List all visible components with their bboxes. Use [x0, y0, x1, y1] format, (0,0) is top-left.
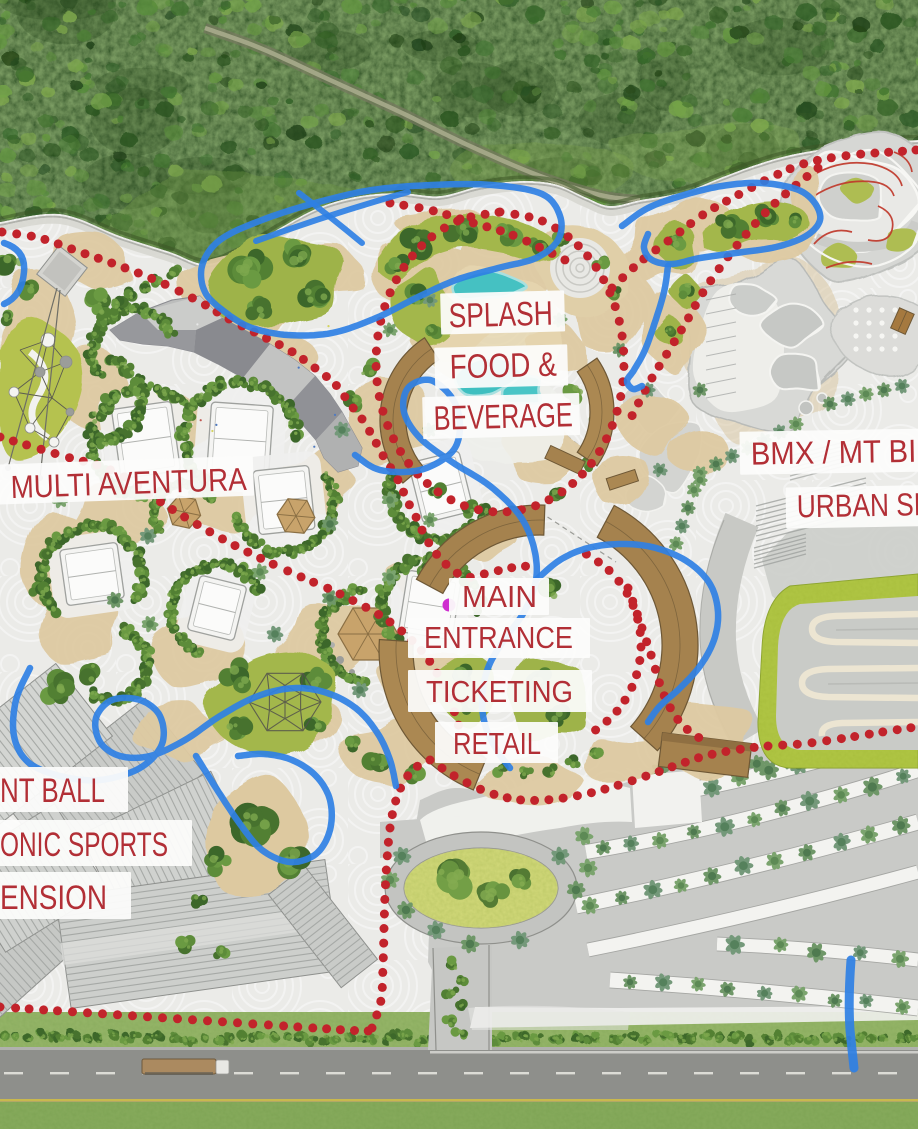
- svg-text:SPLASH: SPLASH: [448, 295, 553, 336]
- svg-text:URBAN SPO: URBAN SPO: [797, 486, 918, 525]
- svg-text:BEVERAGE: BEVERAGE: [433, 396, 573, 438]
- svg-text:FOOD &: FOOD &: [449, 346, 557, 387]
- svg-text:ENSION: ENSION: [0, 879, 107, 917]
- svg-text:BMX / MT BIK: BMX / MT BIK: [751, 432, 918, 471]
- svg-text:ENTRANCE: ENTRANCE: [424, 620, 573, 655]
- svg-text:MAIN: MAIN: [462, 579, 537, 614]
- svg-text:RETAIL: RETAIL: [453, 726, 541, 761]
- svg-text:TICKETING: TICKETING: [426, 674, 573, 709]
- svg-text:ONIC SPORTS: ONIC SPORTS: [0, 826, 168, 864]
- svg-text:NT BALL: NT BALL: [0, 772, 105, 810]
